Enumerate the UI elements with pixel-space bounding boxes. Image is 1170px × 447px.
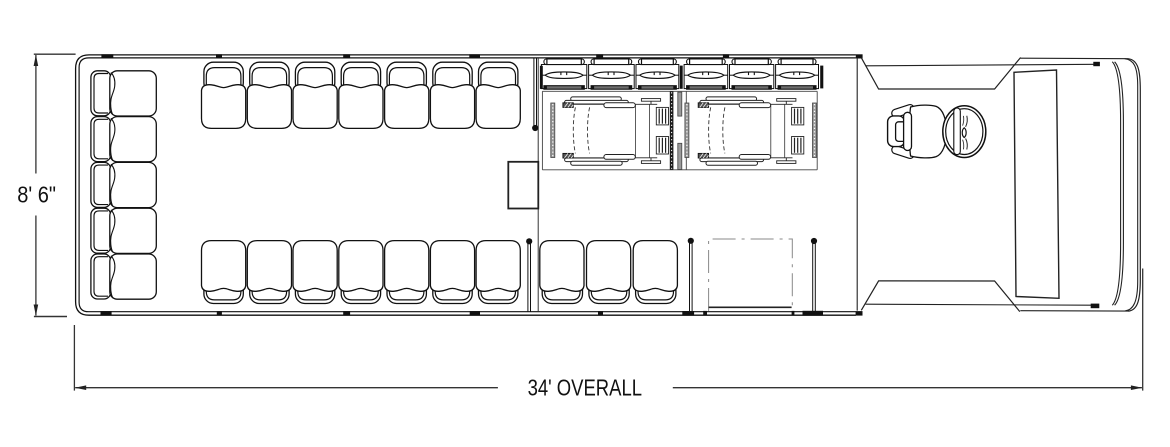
svg-text:8' 6": 8' 6" [17, 182, 56, 208]
svg-text:34' OVERALL: 34' OVERALL [528, 375, 643, 401]
